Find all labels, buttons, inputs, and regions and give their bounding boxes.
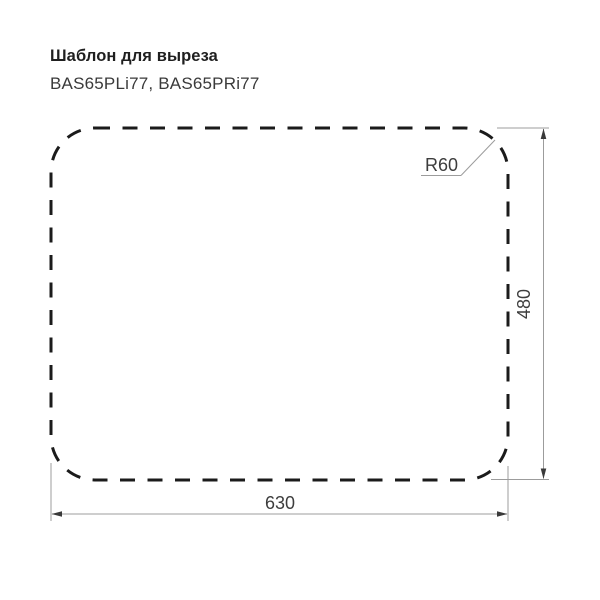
width-arrow-left-icon xyxy=(52,511,63,517)
cutout-outline xyxy=(51,128,508,480)
radius-leader-line xyxy=(461,140,495,176)
height-arrow-bottom-icon xyxy=(541,469,547,480)
height-arrow-top-icon xyxy=(541,129,547,140)
width-arrow-right-icon xyxy=(497,511,508,517)
height-dimension-label: 480 xyxy=(514,289,534,319)
cutout-diagram: 630 480 R60 xyxy=(0,0,600,600)
page: Шаблон для выреза BAS65PLi77, BAS65PRi77… xyxy=(0,0,600,600)
radius-label: R60 xyxy=(425,155,458,175)
width-dimension-label: 630 xyxy=(265,493,295,513)
